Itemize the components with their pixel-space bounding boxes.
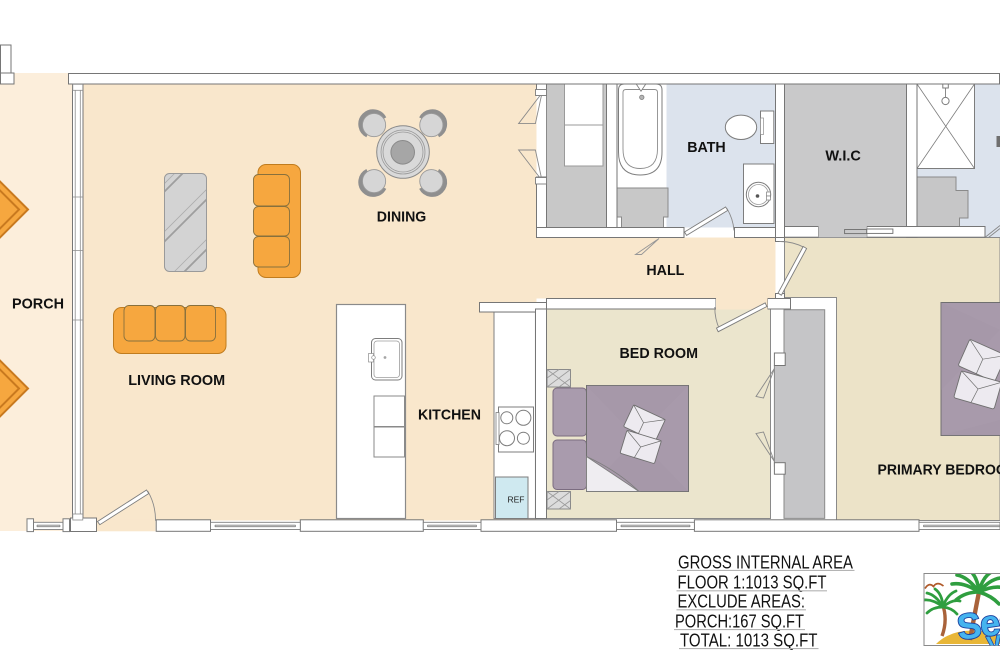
- svg-text:FLOOR 1:1013 SQ.FT: FLOOR 1:1013 SQ.FT: [678, 573, 827, 593]
- svg-text:LIVING ROOM: LIVING ROOM: [128, 372, 225, 389]
- svg-text:TOTAL: 1013 SQ.FT: TOTAL: 1013 SQ.FT: [680, 630, 818, 650]
- svg-text:PORCH:167 SQ.FT: PORCH:167 SQ.FT: [675, 611, 804, 631]
- svg-text:W.I.C: W.I.C: [825, 148, 861, 165]
- svg-text:KITCHEN: KITCHEN: [418, 407, 481, 424]
- svg-text:BATH: BATH: [687, 139, 726, 156]
- svg-text:EXCLUDE AREAS:: EXCLUDE AREAS:: [678, 592, 806, 612]
- svg-text:GROSS INTERNAL AREA: GROSS INTERNAL AREA: [678, 552, 853, 572]
- svg-text:PRIMARY BEDROOM: PRIMARY BEDROOM: [878, 461, 1000, 478]
- svg-text:DINING: DINING: [377, 208, 427, 225]
- svg-text:PORCH: PORCH: [12, 296, 64, 313]
- svg-text:REF: REF: [508, 495, 525, 505]
- svg-text:BED ROOM: BED ROOM: [620, 345, 699, 362]
- svg-text:HALL: HALL: [646, 262, 684, 279]
